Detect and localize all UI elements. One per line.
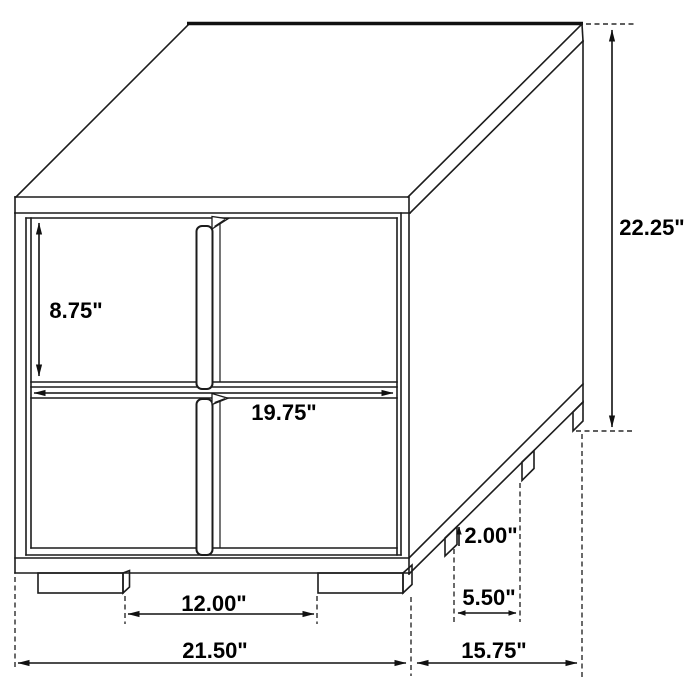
side-leg-back (573, 402, 583, 431)
overall-depth-label: 15.75" (461, 638, 526, 663)
side-panel (409, 41, 583, 574)
dimension-overall-depth: 15.75" (417, 638, 577, 663)
side-leg-front (445, 527, 457, 557)
top-face (15, 24, 583, 214)
side-leg-middle (522, 451, 534, 481)
dimension-side-leg-spacing: 5.50" (458, 585, 516, 613)
front-right-leg (318, 573, 403, 593)
front-leg-spacing-label: 12.00" (181, 591, 246, 616)
extension-lines (15, 24, 634, 680)
handle-upper (197, 217, 229, 390)
dimension-overall-height: 22.25" (612, 30, 685, 427)
leg-height-label: 2.00" (464, 523, 517, 548)
dimension-drawer-height: 8.75" (39, 223, 103, 376)
front-legs (38, 565, 412, 593)
diagram-canvas: 8.75" 19.75" 22.25" 2.00" 5.50" 12.00" 2… (0, 0, 700, 700)
dimension-front-leg-spacing: 12.00" (128, 591, 314, 616)
dimension-leg-height: 2.00" (459, 523, 518, 548)
furniture-dimension-diagram: 8.75" 19.75" 22.25" 2.00" 5.50" 12.00" 2… (0, 0, 700, 700)
drawer-height-label: 8.75" (49, 298, 102, 323)
overall-height-label: 22.25" (619, 215, 684, 240)
dimension-overall-width: 21.50" (18, 638, 406, 663)
drawer-width-label: 19.75" (251, 400, 316, 425)
front-left-leg (38, 573, 123, 593)
side-leg-spacing-label: 5.50" (462, 585, 515, 610)
overall-width-label: 21.50" (182, 638, 247, 663)
handle-lower (197, 394, 229, 556)
